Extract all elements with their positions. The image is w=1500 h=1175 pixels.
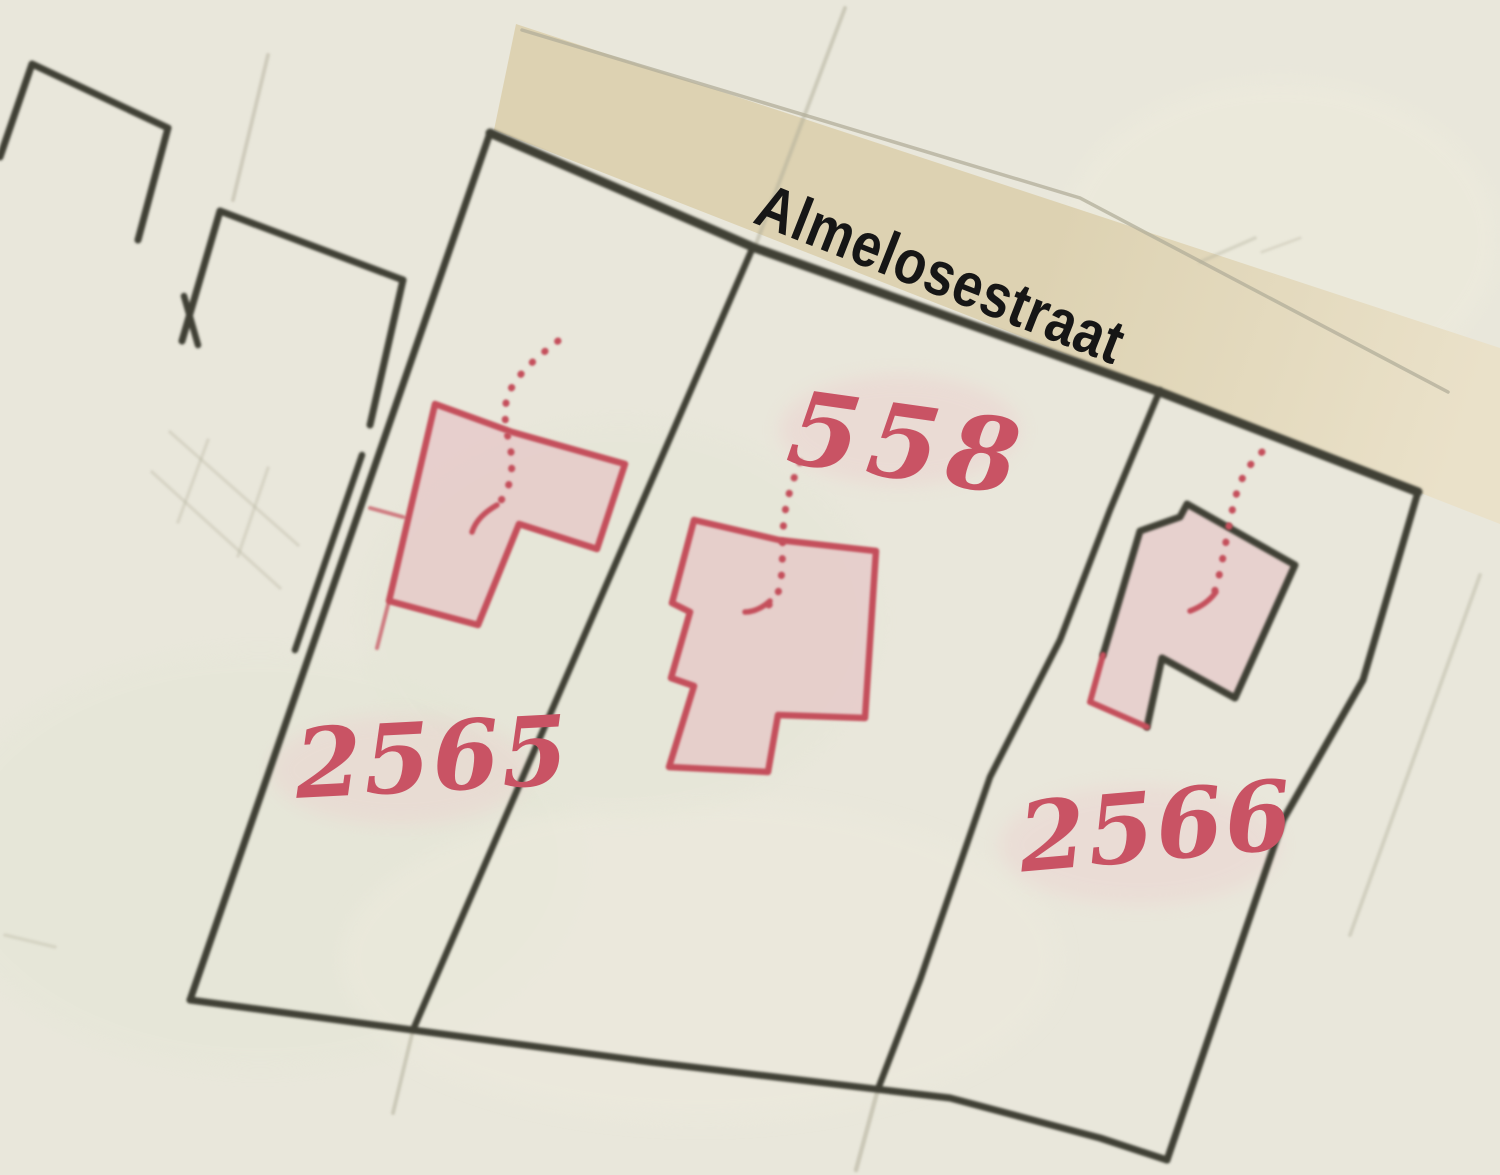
- parcel-number-2565: 2565: [292, 694, 573, 821]
- building-2566-fill: [1090, 504, 1295, 727]
- neighbor-parcel-2: [182, 211, 403, 341]
- parcel-number-2566: 2566: [1014, 758, 1298, 895]
- cadastral-map: Almelosestraat 2565 558 2566: [0, 0, 1500, 1175]
- map-canvas: [0, 0, 1500, 1175]
- neighbor-parcel-1: [0, 64, 168, 240]
- building-2565-tick-1: [370, 508, 403, 517]
- neighbor-parcel-2c: [295, 455, 362, 650]
